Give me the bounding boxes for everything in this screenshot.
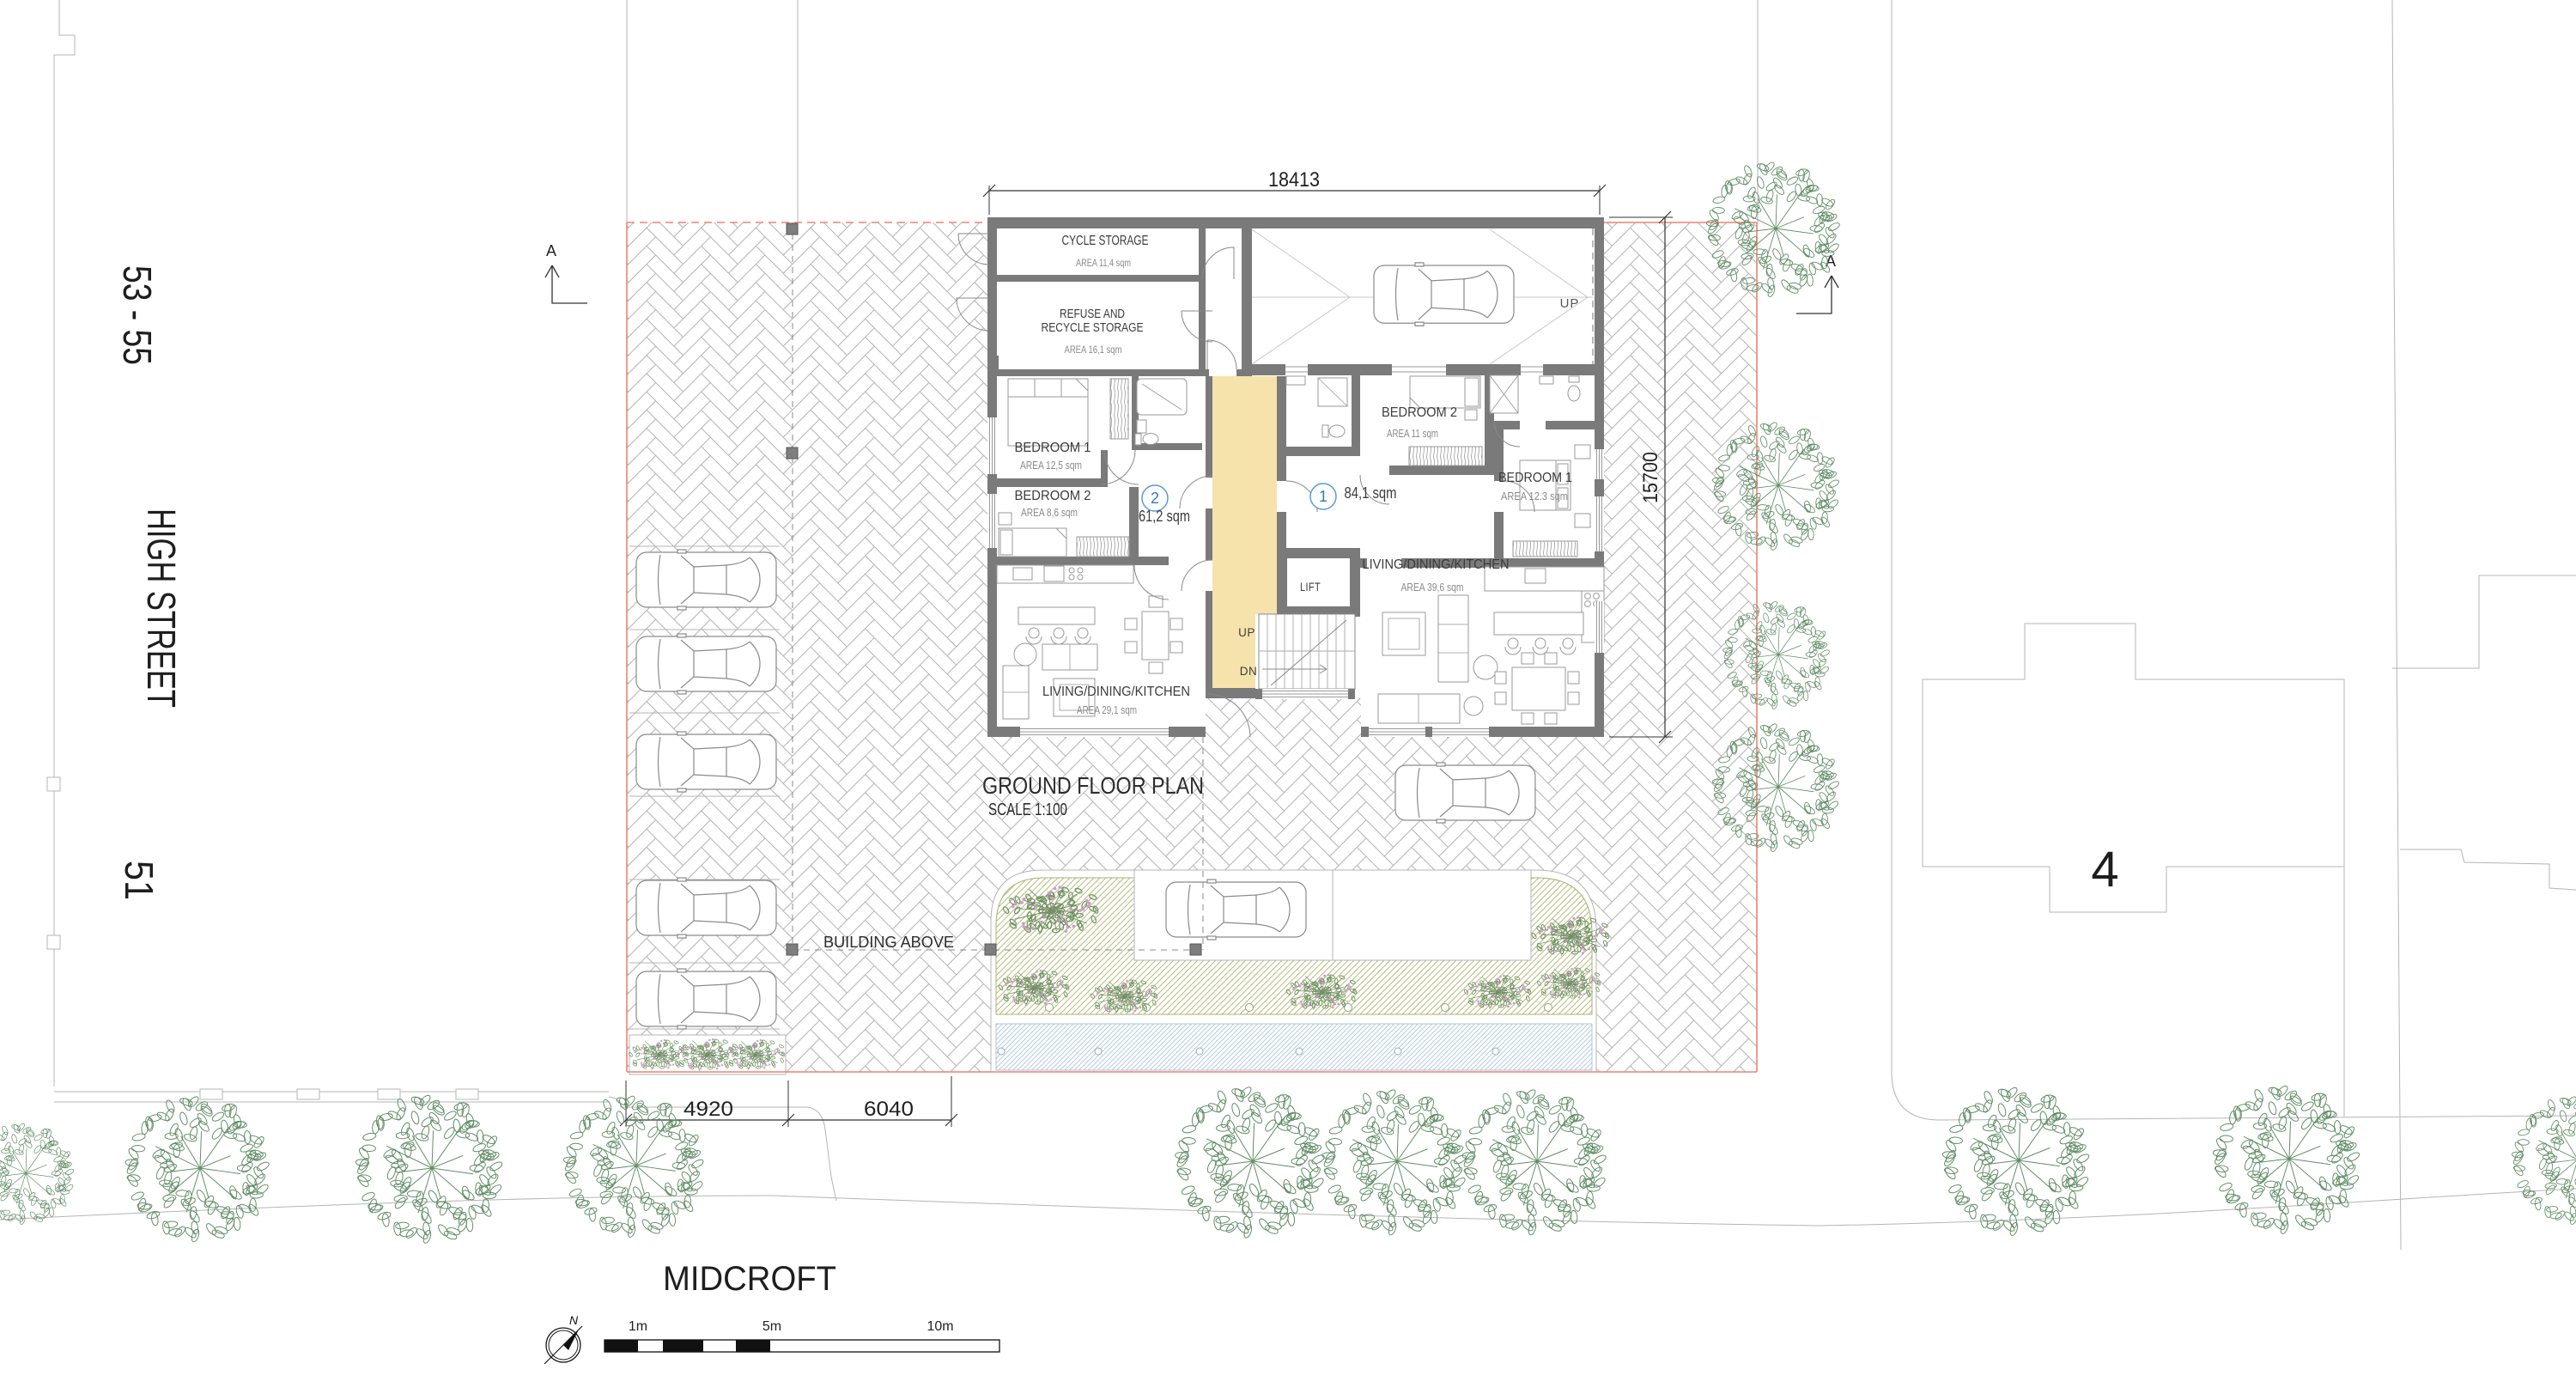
svg-text:6040: 6040: [864, 1098, 914, 1121]
svg-text:AREA 11 sqm: AREA 11 sqm: [1387, 428, 1438, 440]
svg-text:GROUND FLOOR PLAN: GROUND FLOOR PLAN: [982, 772, 1204, 799]
svg-text:HIGH STREET: HIGH STREET: [139, 508, 184, 708]
svg-text:15700: 15700: [1639, 452, 1662, 503]
svg-text:2: 2: [1151, 490, 1159, 507]
svg-text:1: 1: [1319, 488, 1327, 505]
svg-text:BUILDING ABOVE: BUILDING ABOVE: [823, 934, 954, 951]
svg-text:4: 4: [2091, 842, 2119, 898]
svg-text:84,1 sqm: 84,1 sqm: [1345, 484, 1397, 502]
svg-text:AREA 11,4 sqm: AREA 11,4 sqm: [1076, 257, 1131, 269]
svg-text:RECYCLE STORAGE: RECYCLE STORAGE: [1042, 320, 1144, 335]
svg-text:BEDROOM 1: BEDROOM 1: [1498, 471, 1572, 485]
svg-text:A: A: [546, 242, 556, 259]
svg-text:LIVING/DINING/KITCHEN: LIVING/DINING/KITCHEN: [1363, 557, 1510, 572]
svg-text:BEDROOM 1: BEDROOM 1: [1015, 441, 1091, 455]
svg-text:SCALE 1:100: SCALE 1:100: [988, 800, 1067, 819]
svg-text:CYCLE STORAGE: CYCLE STORAGE: [1062, 234, 1149, 248]
svg-text:18413: 18413: [1268, 168, 1320, 192]
svg-text:61,2 sqm: 61,2 sqm: [1139, 508, 1190, 525]
svg-text:BEDROOM 2: BEDROOM 2: [1382, 405, 1457, 420]
svg-text:AREA 12,5 sqm: AREA 12,5 sqm: [1020, 459, 1082, 472]
svg-text:1m: 1m: [629, 1319, 647, 1334]
svg-text:AREA 8,6 sqm: AREA 8,6 sqm: [1021, 506, 1078, 519]
svg-text:N: N: [569, 1313, 579, 1327]
svg-text:AREA 12.3 sqm: AREA 12.3 sqm: [1501, 490, 1568, 502]
svg-text:4920: 4920: [683, 1098, 733, 1121]
svg-text:5m: 5m: [762, 1319, 781, 1334]
svg-text:A: A: [1826, 253, 1836, 270]
svg-text:51: 51: [117, 861, 161, 900]
svg-text:AREA 39,6 sqm: AREA 39,6 sqm: [1401, 581, 1464, 594]
svg-text:AREA 29,1 sqm: AREA 29,1 sqm: [1077, 703, 1137, 716]
svg-text:UP: UP: [1560, 296, 1580, 311]
svg-text:LIVING/DINING/KITCHEN: LIVING/DINING/KITCHEN: [1042, 685, 1190, 699]
svg-text:LIFT: LIFT: [1300, 580, 1321, 594]
svg-text:AREA 16,1 sqm: AREA 16,1 sqm: [1065, 344, 1122, 356]
svg-text:10m: 10m: [927, 1319, 953, 1334]
svg-text:53 - 55: 53 - 55: [115, 265, 160, 365]
svg-text:MIDCROFT: MIDCROFT: [663, 1260, 836, 1298]
svg-text:BEDROOM 2: BEDROOM 2: [1015, 489, 1091, 503]
svg-text:REFUSE AND: REFUSE AND: [1060, 307, 1125, 321]
svg-text:DN: DN: [1240, 665, 1258, 678]
svg-text:UP: UP: [1238, 626, 1255, 639]
